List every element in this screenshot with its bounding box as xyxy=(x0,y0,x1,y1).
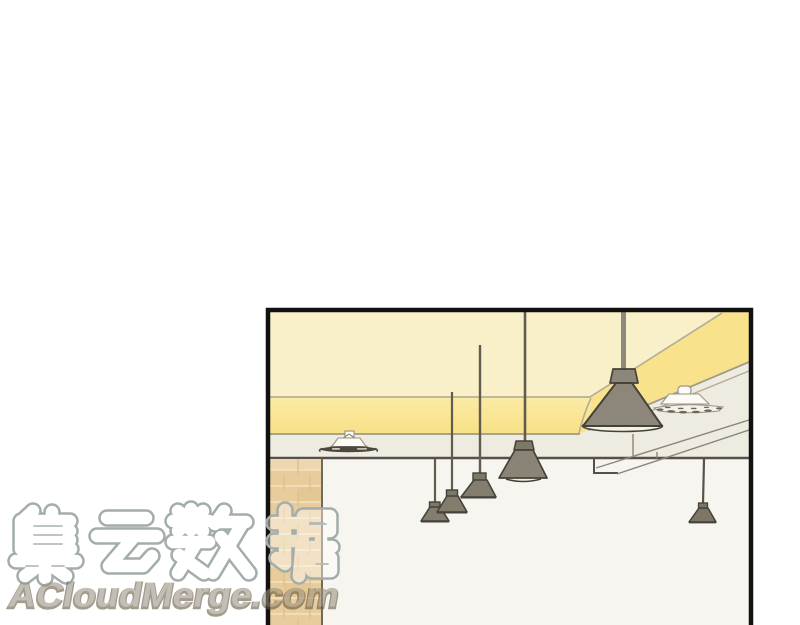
svg-text:ACloudMerge.com: ACloudMerge.com xyxy=(6,576,343,615)
